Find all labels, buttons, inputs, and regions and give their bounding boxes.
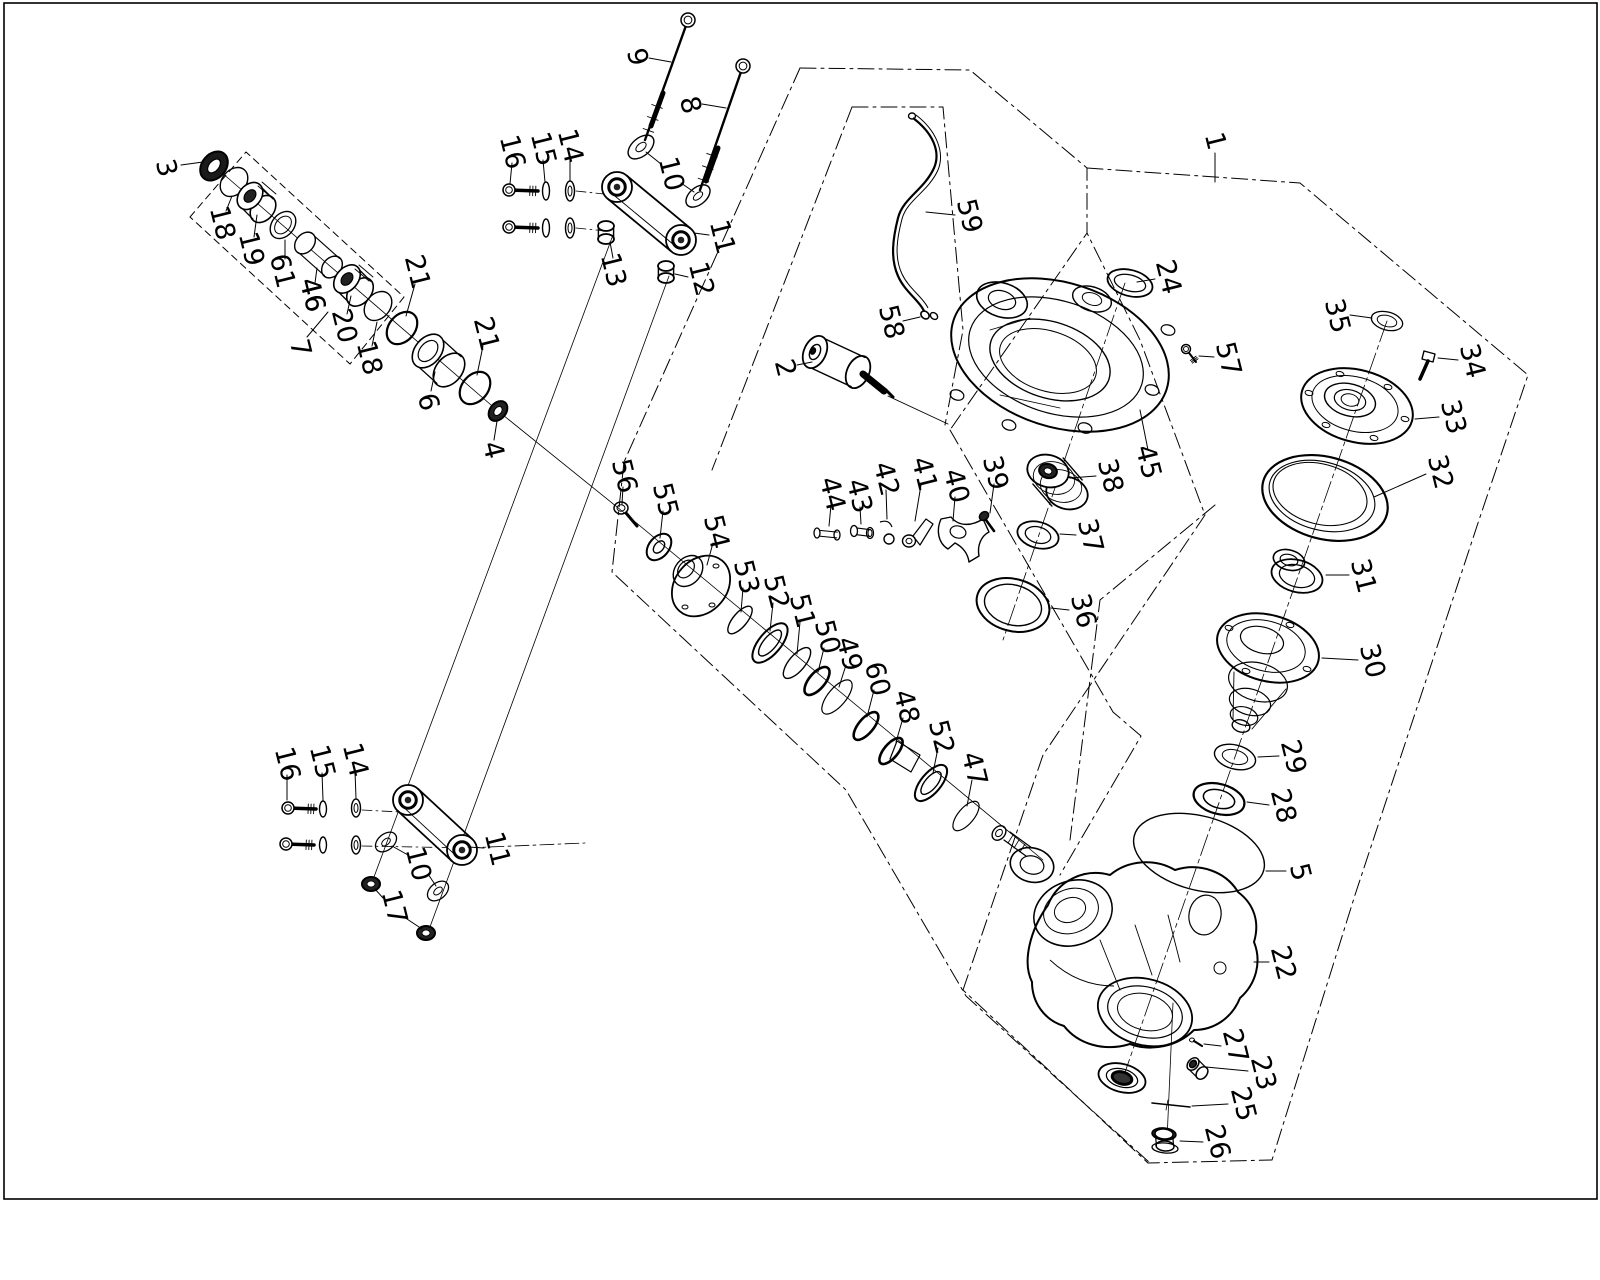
bolt-shaft — [700, 66, 743, 190]
callout-17: 17 — [375, 887, 422, 929]
washer-shape — [543, 219, 550, 237]
bolt-head — [282, 802, 294, 814]
callout-7: 7 — [283, 312, 328, 360]
part-ellipse — [986, 287, 1018, 313]
callout-leader — [181, 162, 203, 165]
callout-leader — [1247, 802, 1269, 805]
callout-number: 26 — [1198, 1122, 1236, 1163]
callout-number: 38 — [1091, 456, 1129, 497]
callout-number: 31 — [1344, 556, 1382, 597]
boundary-line — [963, 168, 1528, 1163]
part-ellipse — [1051, 893, 1089, 926]
callout-27: 27 — [1204, 1026, 1254, 1067]
callout-44: 44 — [813, 474, 851, 526]
cyl-cap — [814, 528, 820, 538]
bolt-head — [1182, 345, 1191, 354]
part-ellipse — [682, 605, 688, 609]
part-path — [880, 521, 892, 527]
part-ring — [1268, 554, 1327, 598]
callout-48: 48 — [887, 687, 925, 742]
washer-shape — [352, 836, 361, 854]
part-ellipse — [713, 564, 719, 568]
part-line — [1168, 915, 1180, 962]
callout-number: 12 — [682, 259, 720, 300]
callout-45: 45 — [1129, 410, 1167, 482]
callout-number: 36 — [1064, 591, 1102, 632]
part-ring — [971, 570, 1056, 639]
callout-53: 53 — [727, 557, 765, 612]
drawing-sheet: 1234567891011121314151618196146201821212… — [0, 0, 1600, 1280]
part-path — [1028, 862, 1258, 1047]
part-ellipse — [909, 113, 916, 119]
part-ellipse — [1125, 800, 1274, 906]
center-line — [622, 511, 1043, 860]
part-ellipse — [972, 276, 1032, 324]
callout-leader — [1137, 279, 1155, 282]
callout-number: 21 — [467, 314, 505, 355]
part-ellipse — [1400, 416, 1409, 423]
cyl-cap — [598, 221, 614, 231]
part-ellipse — [1237, 622, 1286, 659]
callout-number: 35 — [1318, 296, 1356, 337]
part-line — [262, 182, 276, 194]
callout-26: 26 — [1180, 1122, 1236, 1163]
callout-number: 13 — [594, 250, 632, 291]
callout-number: 4 — [476, 438, 510, 462]
link-bar — [418, 789, 472, 839]
boundary-lines — [190, 68, 1528, 1163]
callout-number: 32 — [1421, 452, 1459, 493]
callout-16: 16 — [493, 132, 531, 184]
callout-47: 47 — [955, 749, 993, 806]
callout-number: 53 — [727, 557, 765, 598]
callout-leader — [1206, 1067, 1248, 1071]
washer-shape — [566, 218, 575, 238]
callout-number: 17 — [375, 887, 413, 928]
part-ellipse — [994, 828, 1004, 838]
washer-hole — [568, 223, 572, 233]
boundary-line — [190, 152, 404, 364]
callout-3: 3 — [149, 156, 203, 180]
callout-leader — [1374, 474, 1426, 497]
callout-number: 11 — [703, 217, 741, 258]
part-line — [1014, 840, 1019, 848]
boundary-line — [1070, 505, 1215, 840]
callout-leader — [1204, 1044, 1221, 1046]
part-line — [1000, 395, 1060, 408]
part-ellipse — [800, 663, 834, 699]
callout-number: 60 — [858, 659, 896, 700]
part-ellipse — [1186, 893, 1224, 938]
part-ring — [624, 130, 659, 163]
link-bushing-bore — [405, 797, 412, 804]
part-ring-inner — [1201, 786, 1237, 812]
callout-number: 20 — [325, 306, 363, 347]
part-ellipse — [979, 305, 1120, 416]
part-ellipse — [1102, 978, 1188, 1046]
part-ellipse — [948, 797, 983, 835]
callout-56: 56 — [605, 456, 643, 504]
bolt-head — [736, 59, 750, 73]
callout-number: 11 — [478, 829, 516, 870]
callout-24: 24 — [1137, 257, 1187, 298]
part-ring — [746, 618, 794, 669]
callout-1: 1 — [1198, 129, 1232, 182]
callout-34: 34 — [1438, 341, 1491, 382]
part-ellipse — [868, 530, 872, 537]
callout-41: 41 — [905, 454, 943, 521]
callout-number: 41 — [905, 454, 943, 495]
bolt-head — [280, 838, 292, 850]
callout-29: 29 — [1258, 737, 1312, 778]
callout-number: 24 — [1149, 257, 1187, 298]
callout-30: 30 — [1322, 641, 1391, 682]
washer-shape — [543, 182, 550, 200]
washer-hole — [568, 186, 572, 196]
part-ring — [642, 529, 677, 565]
callout-6: 6 — [411, 372, 445, 414]
part-ellipse — [953, 276, 1159, 438]
callout-9: 9 — [620, 45, 671, 69]
bolt-head — [503, 184, 515, 196]
callout-5: 5 — [1266, 860, 1317, 884]
callout-number: 6 — [411, 390, 445, 414]
callout-59: 59 — [926, 196, 988, 237]
part-line — [1420, 361, 1428, 379]
part-ellipse — [1090, 968, 1200, 1057]
part-ellipse — [989, 823, 1008, 843]
part-ring — [1014, 517, 1061, 553]
part-ellipse — [875, 734, 906, 768]
part-ellipse — [931, 252, 1189, 458]
callout-8: 8 — [673, 93, 726, 117]
part-ellipse — [949, 524, 968, 540]
callout-35: 35 — [1318, 296, 1372, 337]
part-ring — [1190, 778, 1248, 820]
part-ellipse — [1160, 323, 1176, 337]
callout-leader — [307, 312, 328, 337]
bolt-head — [503, 221, 515, 233]
cyl-side — [822, 337, 865, 357]
part-ring-inner — [1023, 524, 1052, 546]
callout-25: 25 — [1192, 1084, 1262, 1125]
part-ellipse — [1037, 881, 1105, 941]
part-ellipse — [1069, 281, 1114, 316]
part-ellipse — [1321, 378, 1380, 422]
callout-32: 32 — [1374, 452, 1459, 497]
callout-leader — [926, 212, 955, 215]
callout-number: 5 — [1283, 860, 1317, 884]
callout-33: 33 — [1415, 397, 1472, 438]
washer-shape — [352, 799, 361, 817]
callout-15: 15 — [303, 742, 341, 800]
callout-46: 46 — [293, 275, 331, 316]
callout-number: 56 — [605, 456, 643, 497]
part-ring-inner — [980, 578, 1046, 632]
center-line — [576, 191, 604, 194]
part-path — [1050, 960, 1114, 986]
center-lines — [214, 166, 1387, 1140]
part-ellipse — [724, 602, 757, 637]
washer-shape — [320, 801, 327, 817]
washer-shape — [320, 837, 327, 853]
callout-36: 36 — [1051, 591, 1102, 632]
callout-number: 54 — [697, 512, 735, 553]
part-ring-inner — [380, 836, 392, 847]
callout-57: 57 — [1199, 339, 1247, 380]
part-ellipse — [674, 557, 698, 581]
part-ring — [372, 828, 401, 856]
callout-number: 44 — [813, 474, 851, 515]
cyl-cap — [658, 261, 674, 271]
callout-number: 52 — [922, 717, 960, 758]
callout-22: 22 — [1254, 943, 1302, 984]
callout-number: 59 — [950, 196, 988, 237]
part-line — [1100, 940, 1120, 990]
callouts: 1234567891011121314151618196146201821212… — [149, 45, 1491, 1163]
part-ring — [424, 877, 453, 905]
part-ellipse — [1144, 383, 1160, 397]
callout-40: 40 — [937, 466, 975, 521]
callout-leader — [1438, 358, 1458, 360]
part-line — [626, 513, 637, 526]
cyl-cap — [841, 352, 875, 392]
callout-21: 21 — [467, 314, 505, 375]
callout-number: 10 — [652, 154, 690, 195]
part-ellipse — [1111, 1070, 1133, 1087]
callout-13: 13 — [594, 242, 632, 290]
callout-14: 14 — [336, 740, 374, 798]
boundary-line — [800, 68, 1087, 430]
callout-number: 29 — [1274, 737, 1312, 778]
part-line — [1135, 925, 1152, 975]
part-line — [1233, 672, 1234, 719]
callout-number: 30 — [1353, 641, 1391, 682]
callout-leader — [1415, 417, 1439, 419]
callout-21: 21 — [398, 252, 436, 316]
link-bushing-bore — [459, 847, 466, 854]
part-ellipse — [453, 366, 496, 410]
part-line — [1152, 1103, 1190, 1107]
part-line — [1008, 835, 1013, 843]
link-bar — [607, 199, 671, 252]
center-line — [498, 411, 622, 511]
callout-leader — [1258, 756, 1279, 757]
part-ellipse — [660, 544, 742, 628]
callout-39: 39 — [976, 453, 1014, 513]
callout-number: 1 — [1198, 129, 1232, 153]
boundary-line — [612, 462, 1150, 1163]
part-ring-inner — [651, 539, 667, 556]
cyl-side — [297, 252, 324, 276]
part-ellipse — [1214, 962, 1226, 974]
link-bar-edge — [612, 193, 676, 246]
callout-number: 39 — [976, 453, 1014, 494]
part-geometry — [195, 13, 1435, 1154]
part-ellipse — [817, 675, 858, 719]
link-bushing-bore — [614, 184, 621, 191]
callout-number: 18 — [350, 338, 388, 379]
part-line — [1010, 832, 1032, 848]
part-ellipse — [709, 603, 715, 607]
exploded-parts-diagram: 1234567891011121314151618196146201821212… — [0, 0, 1600, 1280]
part-ellipse — [919, 309, 930, 320]
callout-31: 31 — [1326, 556, 1382, 597]
callout-leader — [494, 421, 497, 440]
callout-number: 33 — [1434, 397, 1472, 438]
callout-leader — [1180, 1141, 1203, 1142]
cyl-cap — [851, 526, 858, 537]
callout-number: 3 — [149, 156, 183, 180]
part-ellipse — [884, 534, 894, 544]
part-ellipse — [367, 881, 375, 887]
callout-37: 37 — [1060, 516, 1109, 557]
center-line — [1123, 321, 1387, 1078]
part-path — [938, 517, 989, 562]
callout-10: 10 — [392, 844, 437, 886]
center-line — [888, 396, 948, 424]
cyl-cap — [658, 273, 674, 283]
callout-number: 58 — [872, 302, 910, 343]
callout-16: 16 — [268, 744, 306, 800]
callout-number: 45 — [1129, 442, 1167, 483]
callout-55: 55 — [646, 480, 684, 538]
callout-12: 12 — [675, 259, 720, 300]
cyl-side — [808, 367, 851, 387]
part-line — [886, 390, 893, 397]
part-ellipse — [1018, 853, 1046, 877]
boundary-line — [712, 107, 852, 470]
washer-shape — [566, 181, 575, 201]
part-ellipse — [949, 388, 965, 402]
callout-number: 7 — [283, 336, 317, 360]
callout-number: 10 — [399, 844, 437, 885]
center-line — [362, 810, 400, 812]
callout-number: 47 — [955, 749, 993, 790]
callout-11: 11 — [694, 217, 741, 258]
part-ring-inner — [917, 768, 944, 797]
part-ellipse — [1369, 435, 1378, 442]
callout-28: 28 — [1247, 786, 1302, 827]
part-line — [863, 374, 884, 391]
bolt-head — [681, 13, 695, 27]
washer-hole — [354, 841, 358, 850]
part-path — [893, 118, 936, 311]
callout-4: 4 — [476, 421, 510, 462]
callout-number: 57 — [1209, 339, 1247, 380]
callout-leader — [1192, 1104, 1228, 1106]
callout-number: 55 — [646, 480, 684, 521]
part-line — [651, 93, 663, 126]
callout-number: 2 — [768, 356, 802, 380]
part-line — [1194, 1041, 1202, 1046]
callout-number: 28 — [1264, 786, 1302, 827]
part-ellipse — [1221, 611, 1311, 680]
part-ellipse — [1001, 418, 1017, 432]
callout-leader — [1322, 658, 1358, 660]
callout-number: 34 — [1453, 341, 1491, 382]
part-ellipse — [422, 930, 430, 936]
callout-number: 9 — [620, 45, 654, 69]
part-line — [1252, 689, 1286, 729]
callout-number: 22 — [1264, 943, 1302, 984]
part-ellipse — [1209, 603, 1327, 694]
part-ellipse — [1306, 367, 1405, 442]
part-ellipse — [1006, 843, 1057, 887]
callout-number: 27 — [1216, 1026, 1254, 1067]
callout-number: 37 — [1071, 516, 1109, 557]
part-ellipse — [1302, 666, 1311, 673]
callout-number: 21 — [398, 252, 436, 293]
washer-hole — [354, 804, 358, 813]
part-ellipse — [1321, 422, 1330, 429]
callout-number: 8 — [673, 93, 707, 117]
callout-10: 10 — [646, 152, 694, 194]
part-ellipse — [929, 311, 939, 321]
callout-number: 16 — [268, 744, 306, 785]
cyl-cap — [1156, 1140, 1175, 1152]
callout-58: 58 — [872, 302, 920, 343]
part-ellipse — [906, 538, 912, 543]
callout-number: 46 — [293, 275, 331, 316]
callout-number: 15 — [303, 742, 341, 783]
link-bushing-bore — [678, 237, 685, 244]
